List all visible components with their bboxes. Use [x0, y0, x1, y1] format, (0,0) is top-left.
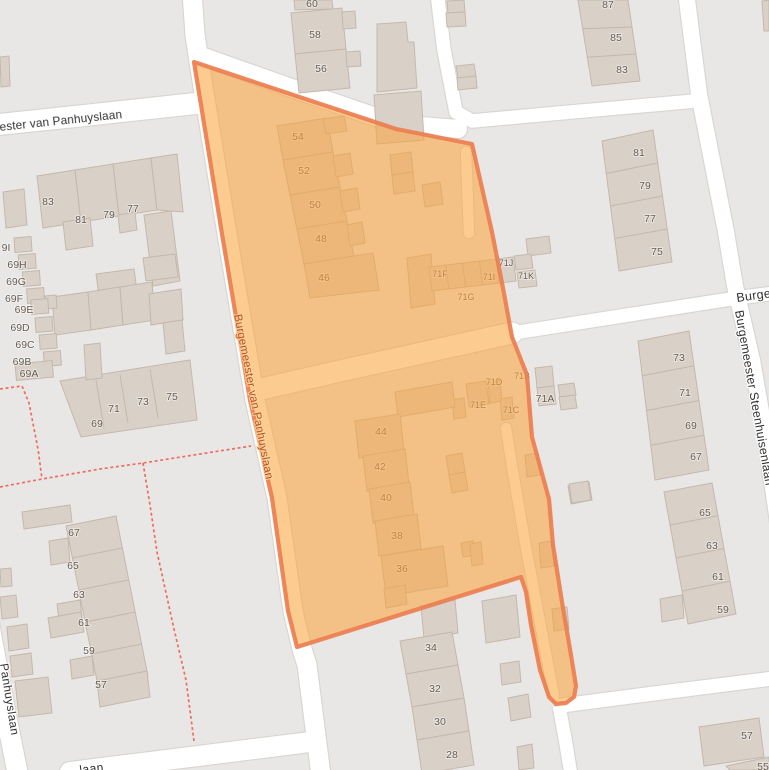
svg-text:79: 79 — [103, 209, 115, 221]
svg-text:55: 55 — [757, 761, 769, 770]
svg-text:69E: 69E — [15, 304, 34, 316]
svg-text:69: 69 — [91, 418, 103, 430]
svg-text:69A: 69A — [20, 368, 39, 380]
svg-text:32: 32 — [429, 683, 441, 695]
svg-text:83: 83 — [42, 196, 54, 208]
svg-text:9I: 9I — [2, 242, 11, 254]
svg-text:61: 61 — [712, 571, 724, 583]
svg-text:73: 73 — [673, 352, 685, 364]
svg-text:71: 71 — [108, 403, 120, 415]
svg-text:67: 67 — [690, 451, 702, 463]
svg-text:77: 77 — [644, 213, 656, 225]
svg-text:28: 28 — [446, 749, 458, 761]
svg-text:85: 85 — [610, 32, 622, 44]
svg-text:67: 67 — [68, 527, 80, 539]
svg-text:59: 59 — [83, 645, 95, 657]
svg-text:57: 57 — [741, 730, 753, 742]
svg-text:71A: 71A — [536, 393, 555, 405]
svg-text:61: 61 — [78, 617, 90, 629]
svg-text:77: 77 — [127, 203, 139, 215]
svg-text:69H: 69H — [7, 259, 26, 271]
svg-text:60: 60 — [306, 0, 318, 10]
svg-text:69B: 69B — [13, 356, 32, 368]
svg-text:83: 83 — [616, 64, 628, 76]
svg-text:69C: 69C — [15, 339, 35, 351]
svg-text:69G: 69G — [6, 276, 26, 288]
svg-text:65: 65 — [67, 560, 79, 572]
svg-text:71K: 71K — [518, 271, 534, 281]
svg-text:59: 59 — [717, 604, 729, 616]
svg-text:81: 81 — [75, 214, 87, 226]
svg-text:65: 65 — [699, 507, 711, 519]
svg-text:75: 75 — [166, 391, 178, 403]
svg-text:56: 56 — [315, 63, 327, 75]
svg-text:71J: 71J — [499, 258, 514, 268]
svg-text:87: 87 — [602, 0, 614, 11]
svg-text:69D: 69D — [10, 322, 30, 334]
svg-text:57: 57 — [95, 679, 107, 691]
svg-text:71: 71 — [679, 387, 691, 399]
svg-text:34: 34 — [425, 642, 437, 654]
svg-text:58: 58 — [309, 29, 321, 41]
svg-text:30: 30 — [434, 716, 446, 728]
svg-text:75: 75 — [651, 246, 663, 258]
svg-text:73: 73 — [137, 396, 149, 408]
svg-text:79: 79 — [639, 180, 651, 192]
svg-text:63: 63 — [73, 589, 85, 601]
svg-text:63: 63 — [706, 540, 718, 552]
svg-text:81: 81 — [633, 147, 645, 159]
svg-text:69: 69 — [685, 420, 697, 432]
